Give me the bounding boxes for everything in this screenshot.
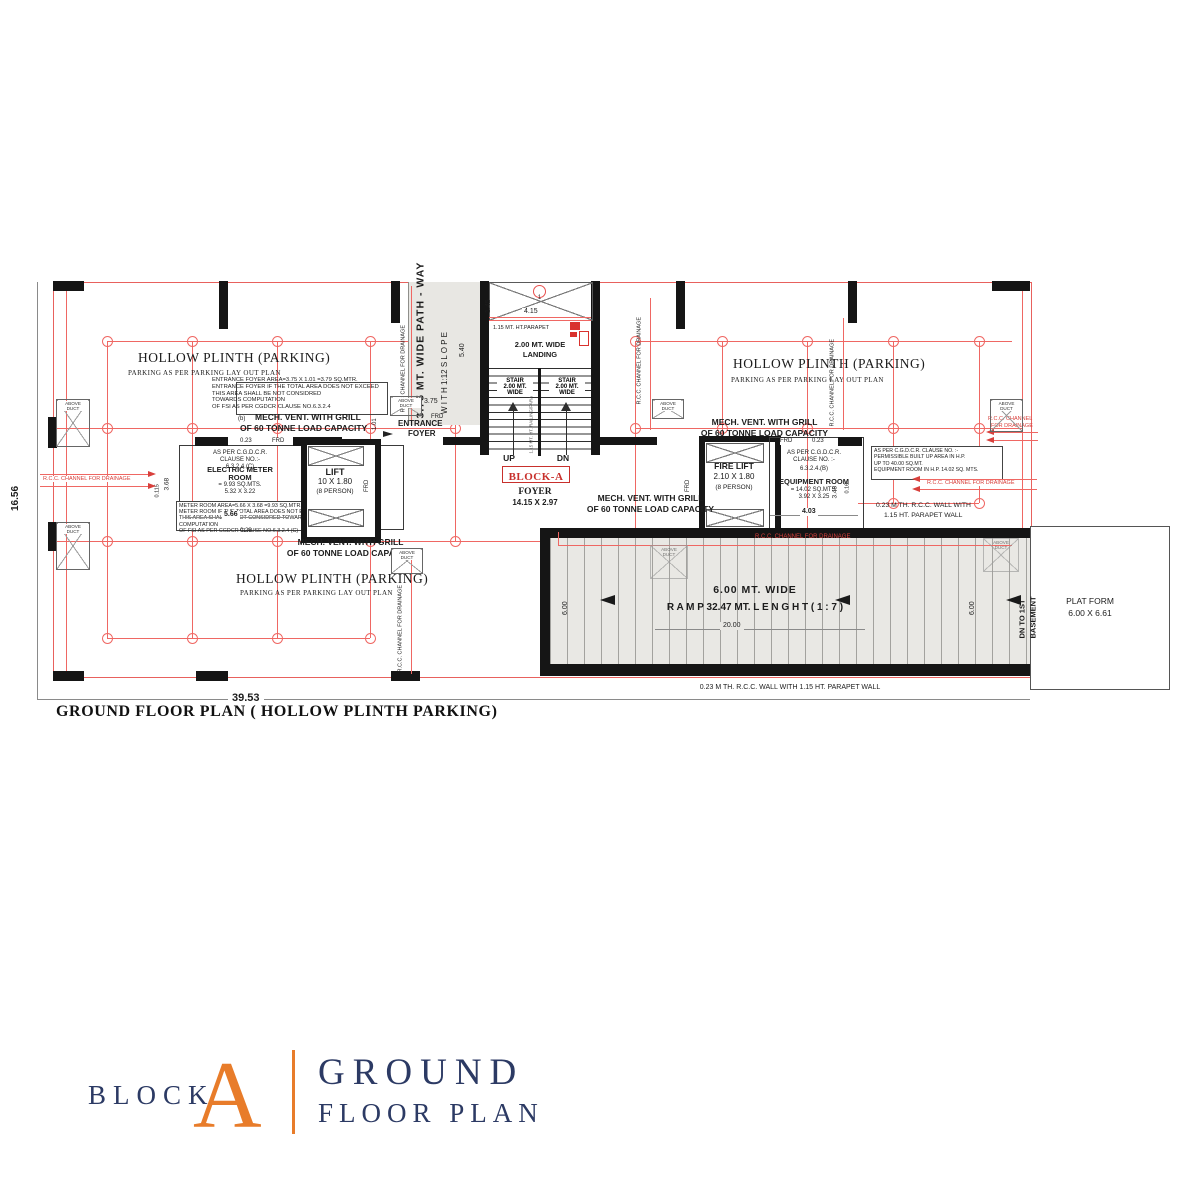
stair-center-line xyxy=(513,411,514,455)
equipment-clause-3: 6.3.2.4.(B) xyxy=(770,466,858,473)
ramp-surface xyxy=(550,538,1030,664)
drain-arrow xyxy=(148,471,156,477)
entrance-note-5: OF FSI AS PER CGDCR CLAUSE NO.6.3.2.4 xyxy=(212,404,379,411)
entrance-label-2: FOYER xyxy=(408,430,436,439)
drain-vlabel: R.C.C. CHANNEL FOR DRAINAGE xyxy=(831,319,837,427)
plan-caption: GROUND FLOOR PLAN ( HOLLOW PLINTH PARKIN… xyxy=(56,703,498,721)
ramp-arrow xyxy=(600,595,615,605)
above-duct-label: ABOVEDUCT xyxy=(651,547,687,557)
wall-col xyxy=(676,281,685,329)
platform-dn-2: BASEMENT xyxy=(1030,581,1038,639)
lift-name: LIFT xyxy=(305,467,365,477)
stair-up-label: UP xyxy=(495,454,523,464)
pathway-slope-dim: 5.40 xyxy=(459,331,466,357)
grid-marker xyxy=(102,536,113,547)
fire-lift-size: 2.10 X 1.80 xyxy=(703,473,765,482)
ramp-drain-label: R.C.C. CHANNEL FOR DRAINAGE xyxy=(755,534,850,541)
entrance-frd: FRD xyxy=(431,414,443,421)
grid-marker xyxy=(888,423,899,434)
wall-col xyxy=(219,281,228,329)
mech-vent-a1: MECH. VENT. WITH GRILL xyxy=(255,413,361,423)
grid-marker xyxy=(365,336,376,347)
above-duct-text: DUCT xyxy=(991,406,1022,411)
hp-note-4: EQUIPMENT ROOM IN H.P. 14.02 SQ. MTS. xyxy=(874,467,1000,473)
grid-line xyxy=(635,341,1012,342)
meter-area: = 9.93 SQ.MTS. xyxy=(185,482,295,489)
ramp-drain-line xyxy=(558,545,1012,546)
above-duct-box: ABOVEDUCT xyxy=(390,396,422,416)
grid-marker xyxy=(974,423,985,434)
title-line-1: GROUND xyxy=(318,1052,524,1093)
ramp-arrow xyxy=(835,595,850,605)
wall-col xyxy=(848,281,857,323)
drain-vline xyxy=(843,318,844,430)
fire-lift-capacity: (8 PERSON) xyxy=(703,484,765,491)
drain-arrow xyxy=(912,486,920,492)
above-duct-label: ABOVEDUCT xyxy=(984,540,1018,550)
grid-marker xyxy=(187,423,198,434)
foyer-wall-left xyxy=(443,437,489,445)
above-duct-text: DUCT xyxy=(651,552,687,557)
wall-note-bottom: 0.23 M TH. R.C.C. WALL WITH 1.15 HT. PAR… xyxy=(640,684,940,692)
stair-dim-v: 1.45 xyxy=(485,289,492,313)
above-duct-box: ABOVEDUCT xyxy=(650,545,688,579)
fire-stamp xyxy=(570,332,577,337)
entrance-note-b: (b) xyxy=(238,416,245,423)
platform-label-2: 6.00 X 6.61 xyxy=(1055,609,1125,619)
wall-bottom xyxy=(53,671,84,681)
drain-vlabel: R.C.C. CHANNEL FOR DRAINAGE xyxy=(638,297,644,405)
grid-marker xyxy=(272,633,283,644)
equipment-size: 3.92 X 3.25 xyxy=(770,494,858,501)
mech-vent-d2: OF 60 TONNE LOAD CAPACITY xyxy=(578,505,723,515)
above-duct-text: DUCT xyxy=(57,529,89,534)
above-duct-text: DUCT xyxy=(57,406,89,411)
ramp-wide-label: 6.00 MT. WIDE xyxy=(655,585,855,597)
title-divider xyxy=(292,1050,295,1134)
drain-left-label: R.C.C. CHANNEL FOR DRAINAGE xyxy=(43,476,131,482)
drain-topright-line xyxy=(993,440,1038,441)
stair-arrow-dn xyxy=(561,402,571,411)
drain-left-line xyxy=(40,486,152,487)
above-duct-box: ABOVEDUCT xyxy=(56,399,90,447)
drain-arrow xyxy=(148,483,156,489)
block-a-label: BLOCK-A xyxy=(509,471,564,483)
meter-frd: FRD xyxy=(272,438,284,445)
stair-dn-label: DN xyxy=(549,454,577,464)
ramp-drain-hook xyxy=(558,532,559,545)
drain-vlabel: R.C.C. CHANNEL FOR DRAINAGE xyxy=(399,573,405,673)
above-duct-label: ABOVEDUCT xyxy=(392,550,422,560)
above-duct-label: ABOVEDUCT xyxy=(57,524,89,534)
ramp-dim-20: 20.00 xyxy=(720,622,744,630)
fire-lift-frd: FRD xyxy=(685,476,691,492)
meter-size: 5.32 X 3.22 xyxy=(185,489,295,496)
grid-marker xyxy=(365,633,376,644)
wall-top-left xyxy=(53,281,84,291)
lift-vent-bottom xyxy=(308,509,364,527)
entrance-note: ENTRANCE FOYER AREA=3.75 X 1.01 =3.79 SQ… xyxy=(212,377,379,411)
ramp-dim-line xyxy=(655,629,865,630)
grid-marker xyxy=(187,536,198,547)
grid-bubble-1: 1 xyxy=(533,285,546,298)
grid-marker xyxy=(187,633,198,644)
pathway-drain-label: R.C.C. CHANNEL FOR DRAINAGE xyxy=(402,293,408,413)
equipment-clause-2: CLAUSE NO. :- xyxy=(770,457,858,464)
equipment-clause-1: AS PER C.G.D.C.R. xyxy=(770,450,858,457)
above-duct-label: ABOVEDUCT xyxy=(991,401,1022,411)
bottom-dim-line xyxy=(37,699,1030,700)
left-dim-line xyxy=(37,282,38,699)
entrance-label-1: ENTRANCE xyxy=(398,420,442,429)
foyer-wall-right xyxy=(591,437,657,445)
ramp-wall-left xyxy=(540,528,550,676)
above-duct-text: DUCT xyxy=(984,545,1018,550)
lift-capacity: (8 PERSON) xyxy=(305,488,365,495)
drawing-sheet: 16.56 39.53 R.C.C. CHANNEL FOR DRAINAGE … xyxy=(0,0,1200,1200)
drain-topright-line xyxy=(993,432,1038,433)
mech-vent-a2: OF 60 TONNE LOAD CAPACITY xyxy=(240,424,367,434)
grid-marker xyxy=(717,336,728,347)
zone-left-sub: PARKING AS PER PARKING LAY OUT PLAN xyxy=(128,370,281,378)
fire-lift-name: FIRE LIFT xyxy=(703,462,765,472)
grid-marker xyxy=(102,423,113,434)
mech-vent-d1: MECH. VENT. WITH GRILL xyxy=(578,494,723,504)
zone-bottom-sub: PARKING AS PER PARKING LAY OUT PLAN xyxy=(240,590,393,598)
mech-vent-b1: MECH. VENT. WITH GRILL xyxy=(278,538,423,548)
wall-note-right-2: 1.15 HT. PARAPET WALL xyxy=(884,512,962,520)
wall-bottom xyxy=(196,671,228,681)
grid-marker xyxy=(450,536,461,547)
wall-bottom xyxy=(391,671,420,681)
stair-red-line xyxy=(489,320,591,321)
stair-label-right: STAIR 2.00 MT. WIDE xyxy=(549,378,585,396)
grid-marker xyxy=(888,336,899,347)
above-duct-box: ABOVEDUCT xyxy=(391,548,423,574)
drain-right-line xyxy=(920,489,1037,490)
above-duct-text: DUCT xyxy=(653,406,683,411)
platform-dn-1: DN TO 1ST xyxy=(1019,581,1027,639)
stair-center-line xyxy=(566,411,567,455)
ramp-dim-6-left: 6.00 xyxy=(562,589,569,615)
ramp-wall-bottom xyxy=(540,664,1032,676)
mech-vent-c1: MECH. VENT. WITH GRILL xyxy=(692,418,837,428)
ramp-dim-6-right: 6.00 xyxy=(969,589,976,615)
grid-line xyxy=(107,638,370,639)
pathway-label-2: W I T H 1:12 S L O P E xyxy=(441,292,449,414)
meter-dim-top: 0.23 xyxy=(240,438,252,445)
grid-marker xyxy=(102,336,113,347)
grid-marker xyxy=(802,336,813,347)
block-a-badge: BLOCK-A xyxy=(502,466,570,483)
meter-clause-2: CLAUSE NO.:- xyxy=(185,457,295,464)
equipment-frd: FRD xyxy=(780,438,792,445)
entrance-arrow xyxy=(383,431,393,437)
meter-dim-0115: 0.115 xyxy=(156,476,162,498)
entrance-note-2: ENTRANCE FOYER IF THE TOTAL AREA DOES NO… xyxy=(212,384,379,391)
wall-top-right xyxy=(992,281,1030,291)
equipment-dim-403: 4.03 xyxy=(800,508,818,516)
above-duct-box: ABOVEDUCT xyxy=(983,538,1019,572)
meter-clause-1: AS PER C.G.D.C.R. xyxy=(185,450,295,457)
grid-bubble-1-label: 1 xyxy=(538,294,542,301)
foyer-dim: 14.15 X 2.97 xyxy=(502,499,568,508)
hp-note-box: AS PER C.G.D.C.R. CLAUSE NO. :- PERMISSI… xyxy=(871,446,1003,480)
equipment-dim-top: 0.23 xyxy=(812,438,824,445)
entrance-note-4: TOWARDS COMPUTATION xyxy=(212,397,379,404)
grid-marker xyxy=(102,633,113,644)
stair-label-l3: WIDE xyxy=(497,390,533,396)
drain-arrow xyxy=(912,476,920,482)
lift-vent-top xyxy=(308,446,364,466)
above-duct-box: ABOVEDUCT xyxy=(56,522,90,570)
drain-right-label: R.C.C. CHANNEL FOR DRAINAGE xyxy=(927,480,1015,486)
meter-wall xyxy=(195,437,228,446)
above-duct-box: ABOVEDUCT xyxy=(652,399,684,419)
equipment-dim-348: 3.48 xyxy=(833,471,840,499)
landing-label-1: 2.00 MT. WIDE xyxy=(489,341,591,349)
stair-divider xyxy=(538,368,541,456)
equipment-dim-016: 0.16 xyxy=(846,474,852,494)
above-duct-text: DUCT xyxy=(392,555,422,560)
entrance-note-1: ENTRANCE FOYER AREA=3.75 X 1.01 =3.79 SQ… xyxy=(212,377,379,384)
stair-label-r3: WIDE xyxy=(549,390,585,396)
above-duct-label: ABOVEDUCT xyxy=(57,401,89,411)
meter-dim-566: 5.66 xyxy=(222,511,240,519)
foyer-label: FOYER xyxy=(502,487,568,498)
lift-frd: FRD xyxy=(364,476,370,492)
lift-size: 10 X 1.80 xyxy=(305,478,365,487)
grid-marker xyxy=(187,336,198,347)
zone-left-title: HOLLOW PLINTH (PARKING) xyxy=(138,350,330,365)
above-duct-box: ABOVEDUCT xyxy=(990,399,1023,432)
grid-marker xyxy=(974,498,985,509)
above-duct-text: DUCT xyxy=(391,403,421,408)
wall-note-right-1: 0.23 M TH. R.C.C. WALL WITH xyxy=(876,502,971,510)
platform-label-1: PLAT FORM xyxy=(1055,597,1125,607)
wall-col xyxy=(391,281,400,323)
title-block-letter: A xyxy=(193,1042,262,1148)
dim-height: 16.56 xyxy=(11,471,21,511)
grid-marker xyxy=(272,336,283,347)
above-duct-label: ABOVEDUCT xyxy=(653,401,683,411)
equipment-wall xyxy=(838,437,862,446)
zone-right-sub: PARKING AS PER PARKING LAY OUT PLAN xyxy=(731,377,884,385)
stair-label-left: STAIR 2.00 MT. WIDE xyxy=(497,378,533,396)
stair-parapet-note: 1.15 MT. HT.PARAPET xyxy=(493,325,549,331)
grid-marker xyxy=(974,336,985,347)
fire-stamp xyxy=(570,322,580,330)
entrance-note-3: THIS AREA SHALL BE NOT CONSIDRED xyxy=(212,391,379,398)
meter-dim-bottom: 0.23 xyxy=(240,528,252,535)
fire-lift-vent-top xyxy=(706,443,764,463)
drain-arrow xyxy=(986,437,994,443)
drain-vline xyxy=(650,298,651,430)
title-line-2: FLOOR PLAN xyxy=(318,1098,544,1128)
drain-left-line xyxy=(40,474,152,475)
stair-red-line xyxy=(489,317,591,318)
grid-marker xyxy=(630,423,641,434)
landing-label-2: LANDING xyxy=(489,351,591,359)
pathway-width-dim: 3.75 xyxy=(424,398,438,406)
meter-dim-368: 3.68 xyxy=(165,465,172,491)
grid-line xyxy=(107,341,108,638)
above-duct-label: ABOVEDUCT xyxy=(391,398,421,408)
stair-arrow-up xyxy=(508,402,518,411)
stair-dim-h: 4.15 xyxy=(522,308,540,316)
